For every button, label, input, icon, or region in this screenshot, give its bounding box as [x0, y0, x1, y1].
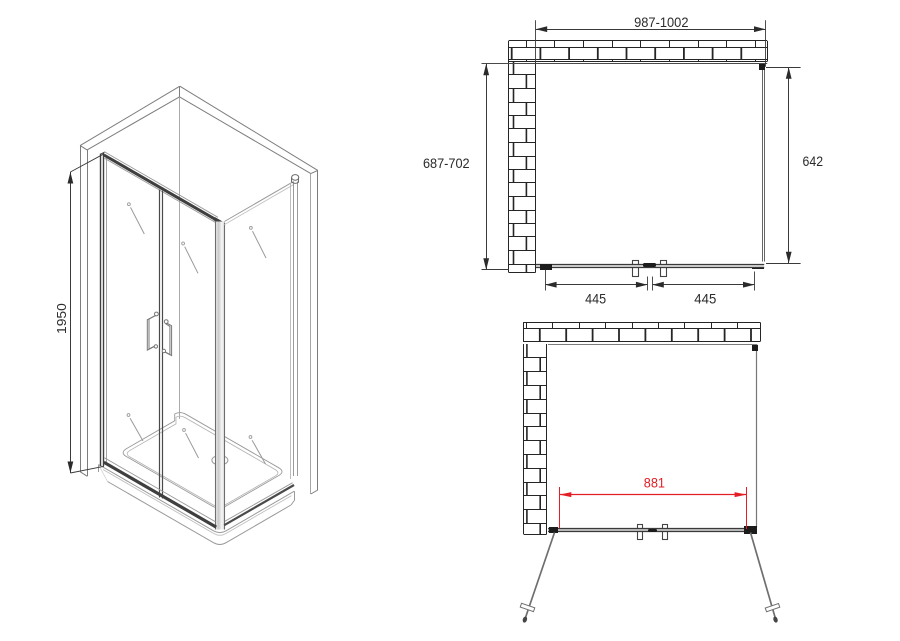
svg-text:687-702: 687-702	[423, 155, 470, 171]
svg-text:987-1002: 987-1002	[634, 14, 689, 30]
svg-text:881: 881	[644, 474, 665, 490]
svg-text:445: 445	[694, 291, 716, 307]
svg-text:642: 642	[803, 153, 824, 169]
svg-text:445: 445	[585, 291, 606, 307]
svg-text:1950: 1950	[54, 303, 69, 334]
